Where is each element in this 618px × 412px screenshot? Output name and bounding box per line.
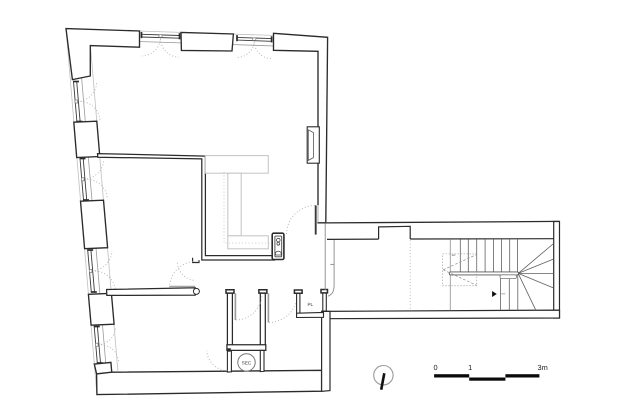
svg-text:SEC: SEC (242, 360, 252, 365)
svg-text:1: 1 (468, 363, 472, 372)
svg-text:0: 0 (433, 363, 437, 372)
svg-text:PL: PL (307, 302, 313, 307)
svg-text:3m: 3m (538, 363, 548, 372)
